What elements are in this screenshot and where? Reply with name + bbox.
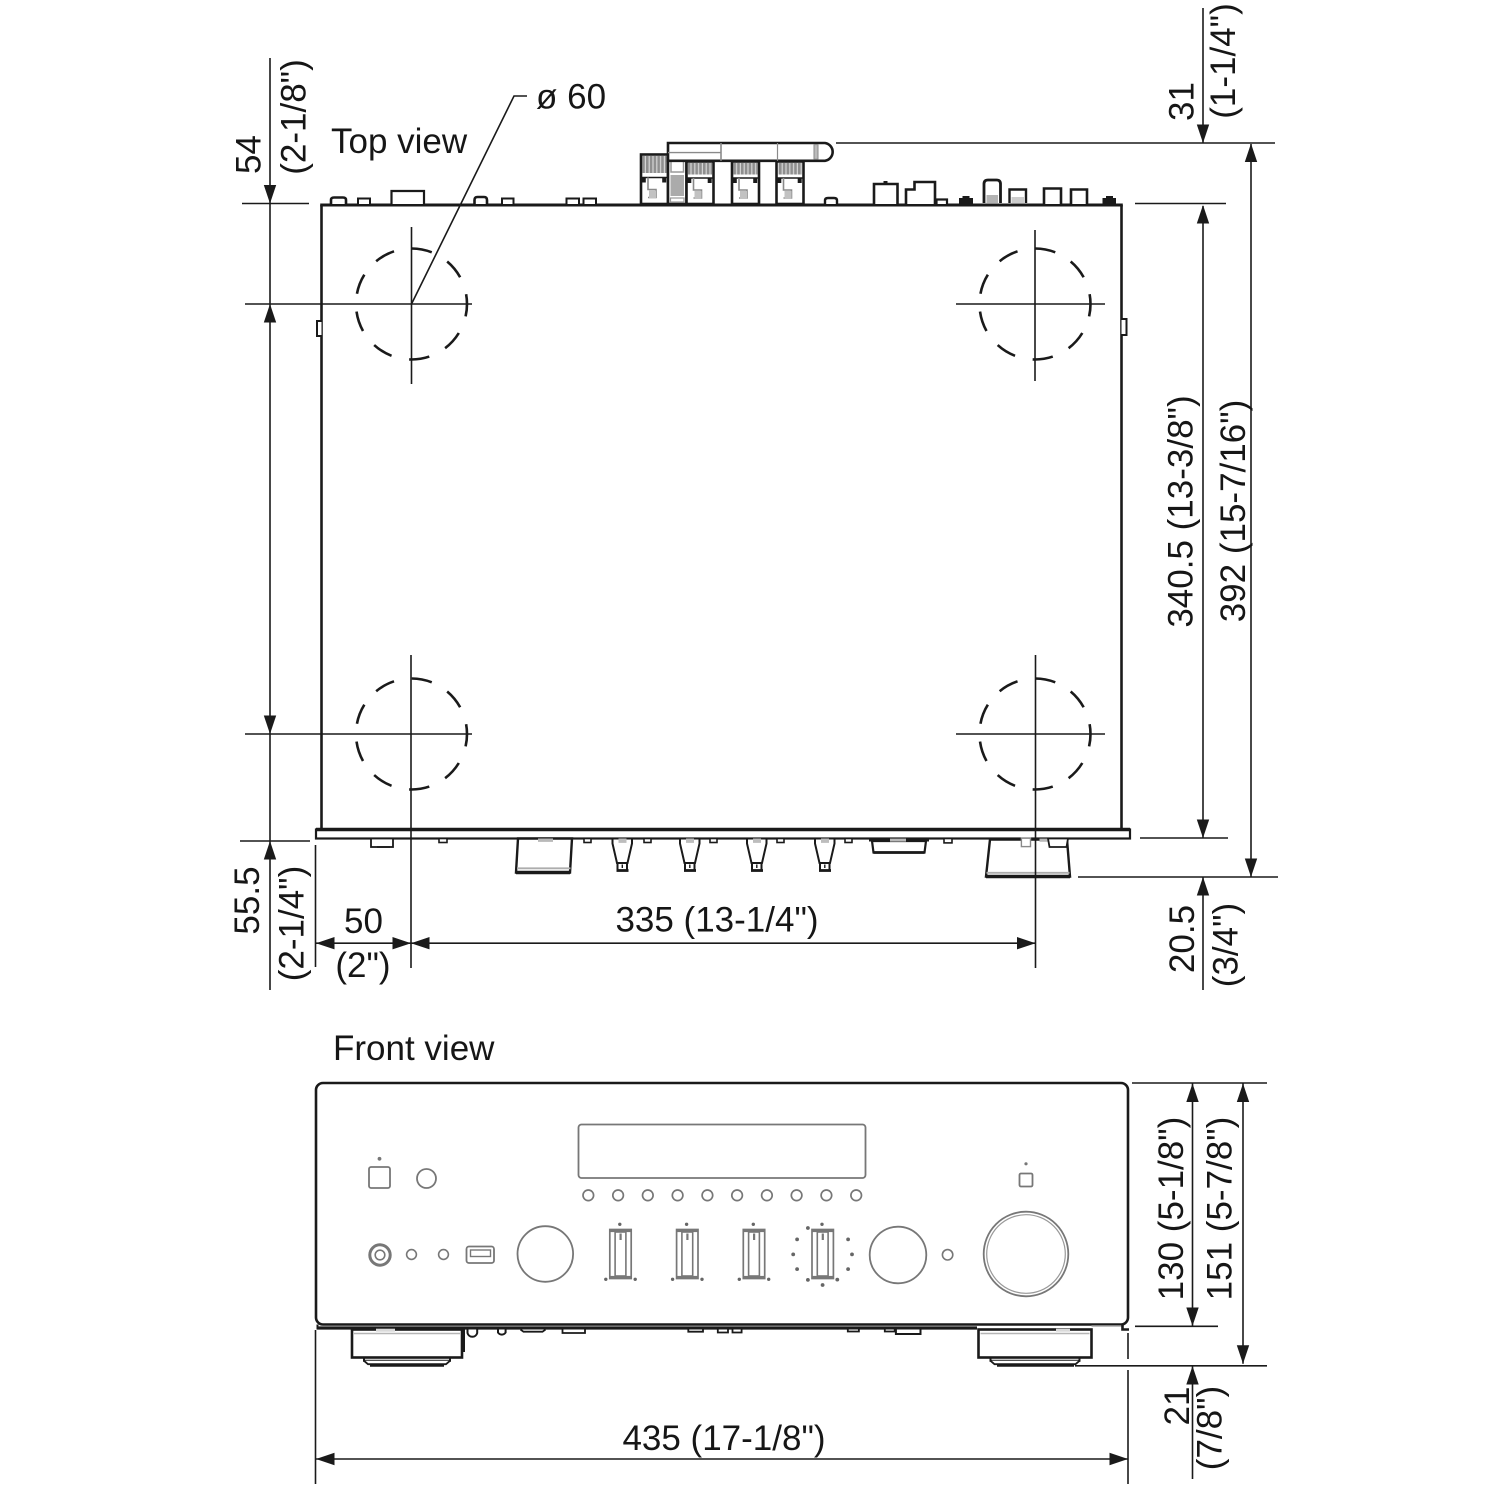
svg-text:(2-1/4"): (2-1/4") bbox=[273, 866, 312, 982]
svg-text:(2-1/8"): (2-1/8") bbox=[275, 59, 314, 175]
svg-text:55.5: 55.5 bbox=[228, 866, 267, 934]
svg-text:(1-1/4"): (1-1/4") bbox=[1204, 3, 1243, 119]
svg-text:392 (15-7/16"): 392 (15-7/16") bbox=[1214, 400, 1253, 623]
svg-text:(7/8"): (7/8") bbox=[1191, 1386, 1230, 1470]
svg-text:31: 31 bbox=[1163, 82, 1202, 121]
svg-text:435 (17-1/8"): 435 (17-1/8") bbox=[622, 1419, 825, 1458]
svg-text:ø 60: ø 60 bbox=[536, 78, 606, 117]
svg-text:50: 50 bbox=[344, 902, 383, 941]
svg-text:(2"): (2") bbox=[335, 946, 390, 985]
svg-text:151 (5-7/8"): 151 (5-7/8") bbox=[1201, 1117, 1240, 1301]
svg-text:Top view: Top view bbox=[331, 122, 468, 161]
svg-text:335 (13-1/4"): 335 (13-1/4") bbox=[615, 901, 818, 940]
svg-text:130 (5-1/8"): 130 (5-1/8") bbox=[1152, 1117, 1191, 1301]
svg-text:Front view: Front view bbox=[333, 1029, 495, 1068]
svg-text:20.5: 20.5 bbox=[1163, 905, 1202, 973]
svg-text:54: 54 bbox=[230, 135, 269, 174]
svg-text:(3/4"): (3/4") bbox=[1207, 903, 1246, 987]
svg-text:340.5 (13-3/8"): 340.5 (13-3/8") bbox=[1162, 395, 1201, 627]
